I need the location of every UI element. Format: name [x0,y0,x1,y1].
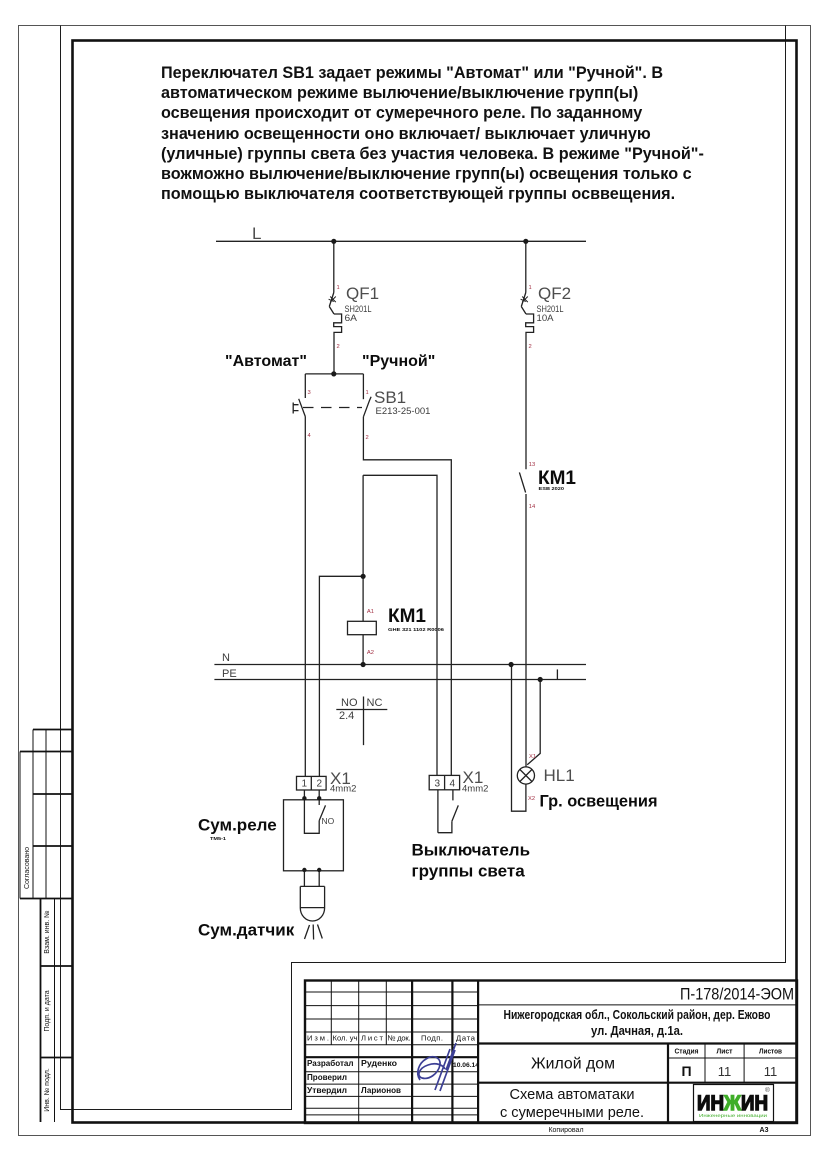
svg-text:A1: A1 [367,609,374,615]
svg-text:"Автомат": "Автомат" [225,353,307,370]
svg-text:Листов: Листов [759,1047,782,1056]
svg-text:L: L [252,224,261,243]
svg-text:Стадия: Стадия [675,1047,699,1056]
svg-text:Утвердил: Утвердил [307,1086,347,1095]
svg-text:1: 1 [302,779,308,790]
svg-text:2: 2 [366,435,369,441]
svg-text:Подп. и дата: Подп. и дата [44,990,51,1031]
svg-text:NC: NC [367,697,383,709]
svg-text:Сум.реле: Сум.реле [198,816,277,835]
svg-text:2.4: 2.4 [339,710,354,722]
svg-text:A2: A2 [367,650,374,656]
svg-text:Руденко: Руденко [361,1059,397,1068]
svg-text:4mm2: 4mm2 [462,784,488,795]
svg-text:ТМ5-1: ТМ5-1 [210,836,226,842]
svg-text:Кол. уч: Кол. уч [333,1034,358,1043]
svg-text:N: N [222,652,230,664]
svg-text:4: 4 [308,433,312,439]
svg-text:Выключатель: Выключатель [412,841,531,860]
svg-text:с сумеречными реле.: с сумеречными реле. [500,1104,644,1121]
svg-text:Сум.датчик: Сум.датчик [198,921,295,940]
svg-text:Проверил: Проверил [307,1073,347,1082]
svg-text:NO: NO [341,697,358,709]
svg-text:ИНЖИН: ИНЖИН [697,1092,768,1115]
svg-text:14: 14 [529,504,536,510]
svg-text:Копировал: Копировал [548,1127,583,1134]
svg-text:Гр. освещения: Гр. освещения [540,793,658,811]
svg-text:NO: NO [322,816,335,826]
svg-text:Дата: Дата [456,1034,476,1043]
svg-text:"Ручной": "Ручной" [362,353,435,370]
svg-text:E213-25-001: E213-25-001 [376,406,431,417]
svg-text:1: 1 [337,285,340,291]
svg-text:11: 11 [718,1064,732,1079]
svg-text:Инженерные инновации: Инженерные инновации [699,1113,768,1118]
svg-text:2: 2 [529,344,532,350]
svg-text:А3: А3 [760,1127,769,1134]
svg-text:группы света: группы света [412,862,526,881]
svg-text:QF1: QF1 [346,284,379,303]
svg-text:PE: PE [222,668,237,680]
svg-text:Инв. № подл.: Инв. № подл. [44,1068,51,1112]
svg-text:2: 2 [317,779,323,790]
svg-text:13: 13 [529,462,535,468]
svg-text:КМ1: КМ1 [388,606,426,627]
svg-text:6A: 6A [345,313,358,324]
svg-text:1: 1 [366,390,369,396]
svg-text:4: 4 [450,779,456,790]
svg-text:Ларионов: Ларионов [361,1086,401,1095]
svg-text:Лист: Лист [361,1034,384,1043]
svg-text:HL1: HL1 [544,766,575,785]
svg-text:Изм.: Изм. [307,1034,329,1043]
svg-text:X2: X2 [528,796,535,802]
svg-text:КМ1: КМ1 [538,468,576,489]
svg-text:Согласовано: Согласовано [24,847,31,889]
svg-text:Схема автоматаки: Схема автоматаки [510,1086,635,1103]
svg-text:ул. Дачная, д.1а.: ул. Дачная, д.1а. [591,1024,683,1038]
svg-text:4mm2: 4mm2 [330,784,356,795]
svg-text:QF2: QF2 [538,284,571,303]
svg-text:GHE 321 1102 R0006: GHE 321 1102 R0006 [388,627,444,633]
svg-text:11: 11 [764,1064,778,1079]
svg-text:2: 2 [337,344,340,350]
svg-text:Нижегородская обл., Сокольский: Нижегородская обл., Сокольский район, де… [504,1008,771,1022]
svg-text:3: 3 [435,779,441,790]
svg-text:Разработал: Разработал [307,1059,354,1068]
svg-text:®: ® [765,1086,770,1094]
svg-text:3: 3 [308,390,311,396]
svg-text:10A: 10A [537,313,555,324]
svg-text:SB1: SB1 [374,388,406,407]
svg-text:Подп.: Подп. [421,1034,443,1043]
svg-text:П: П [681,1063,691,1079]
svg-text:Лист: Лист [717,1047,733,1056]
svg-text:ESB 2020: ESB 2020 [539,486,565,492]
svg-text:10.06.14: 10.06.14 [453,1062,479,1069]
svg-text:Взам. инв. №: Взам. инв. № [44,910,51,953]
svg-text:П-178/2014-ЭОМ: П-178/2014-ЭОМ [680,986,794,1004]
svg-text:Жилой дом: Жилой дом [531,1056,615,1073]
svg-text:X1: X1 [529,754,536,760]
svg-text:№ док.: № док. [388,1034,411,1043]
svg-text:1: 1 [529,285,532,291]
